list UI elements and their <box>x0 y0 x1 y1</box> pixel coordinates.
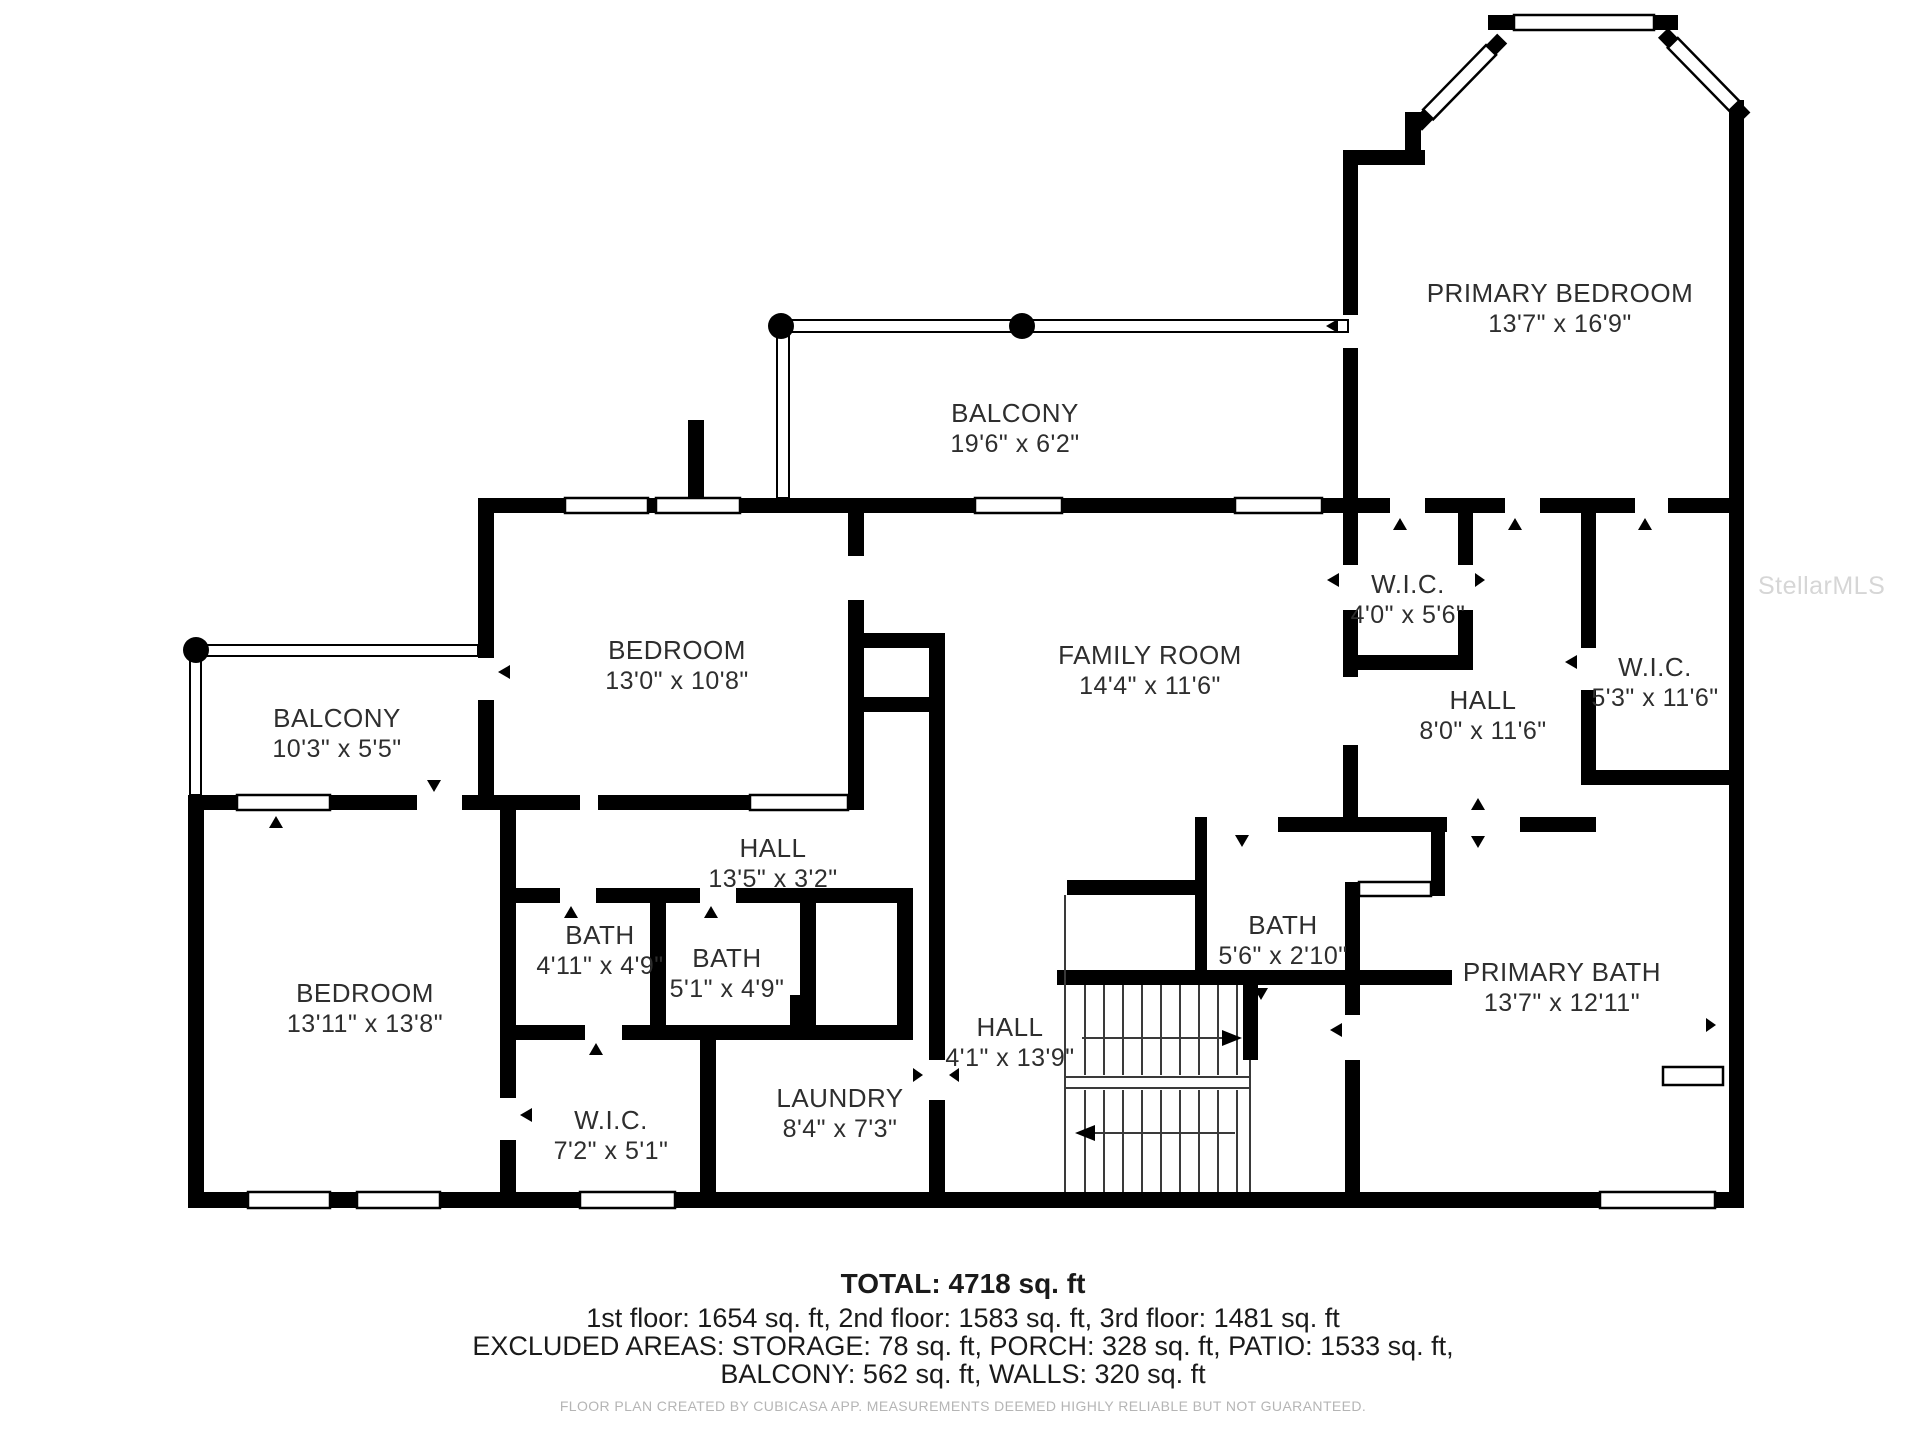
room-label-primary-bedroom: 13'7" x 16'9" <box>1488 310 1632 338</box>
room-label-wic-lower: W.I.C. <box>574 1105 648 1135</box>
room-label-primary-bedroom: PRIMARY BEDROOM <box>1427 278 1694 308</box>
room-label-wic-lower: 7'2" x 5'1" <box>554 1137 669 1165</box>
room-label-bath-left: BATH <box>565 920 634 950</box>
room-label-family-room: FAMILY ROOM <box>1058 640 1242 670</box>
room-label-laundry: LAUNDRY <box>776 1083 903 1113</box>
floor-plan-page: PRIMARY BEDROOM13'7" x 16'9"BALCONY19'6"… <box>0 0 1920 1440</box>
floor-areas-text: 1st floor: 1654 sq. ft, 2nd floor: 1583 … <box>0 1303 1920 1334</box>
room-label-wic-right: 5'3" x 11'6" <box>1591 684 1718 712</box>
excluded-areas-text: EXCLUDED AREAS: STORAGE: 78 sq. ft, PORC… <box>0 1331 1920 1362</box>
room-label-hall-mid: HALL <box>739 833 806 863</box>
room-label-balcony-left: 10'3" x 5'5" <box>272 735 401 763</box>
room-label-bath-mid: 5'1" x 4'9" <box>670 975 785 1003</box>
room-label-bedroom-lower: 13'11" x 13'8" <box>287 1010 443 1038</box>
room-label-hall-lower: HALL <box>976 1012 1043 1042</box>
room-label-primary-bath: 13'7" x 12'11" <box>1484 989 1640 1017</box>
room-label-family-room: 14'4" x 11'6" <box>1079 672 1221 700</box>
room-label-bath-small: BATH <box>1248 910 1317 940</box>
floor-plan-drawing: PRIMARY BEDROOM13'7" x 16'9"BALCONY19'6"… <box>0 0 1920 1440</box>
railing-post <box>768 313 794 339</box>
room-label-wic-top: W.I.C. <box>1371 569 1445 599</box>
room-label-bath-mid: BATH <box>692 943 761 973</box>
total-area-text: TOTAL: 4718 sq. ft <box>0 1268 1920 1300</box>
railing-post <box>1009 313 1035 339</box>
stellar-mls-watermark: StellarMLS <box>1758 572 1885 601</box>
room-label-bath-left: 4'11" x 4'9" <box>536 952 663 980</box>
room-label-wic-right: W.I.C. <box>1618 652 1692 682</box>
railing-post <box>183 637 209 663</box>
room-label-bath-small: 5'6" x 2'10" <box>1218 942 1347 970</box>
excluded-areas-text-2: BALCONY: 562 sq. ft, WALLS: 320 sq. ft <box>0 1359 1920 1390</box>
room-label-bedroom-upper: 13'0" x 10'8" <box>605 667 749 695</box>
bay-window-left <box>1412 34 1507 131</box>
stair-arrow-down <box>1075 1125 1235 1141</box>
bay-window-right <box>1658 28 1750 122</box>
disclaimer-text: FLOOR PLAN CREATED BY CUBICASA APP. MEAS… <box>0 1398 1920 1414</box>
room-label-balcony-top: BALCONY <box>951 398 1079 428</box>
room-label-hall-lower: 4'1" x 13'9" <box>945 1044 1074 1072</box>
room-label-hall-right: HALL <box>1449 685 1516 715</box>
bath-counter <box>1663 1067 1723 1085</box>
room-label-balcony-left: BALCONY <box>273 703 401 733</box>
room-label-hall-right: 8'0" x 11'6" <box>1419 717 1546 745</box>
room-label-bedroom-upper: BEDROOM <box>608 635 746 665</box>
room-label-primary-bath: PRIMARY BATH <box>1463 957 1661 987</box>
staircase <box>1065 895 1250 1192</box>
room-label-wic-top: 4'0" x 5'6" <box>1351 601 1466 629</box>
room-label-bedroom-lower: BEDROOM <box>296 978 434 1008</box>
room-label-hall-mid: 13'5" x 3'2" <box>708 865 837 893</box>
room-label-balcony-top: 19'6" x 6'2" <box>950 430 1079 458</box>
room-label-laundry: 8'4" x 7'3" <box>783 1115 898 1143</box>
